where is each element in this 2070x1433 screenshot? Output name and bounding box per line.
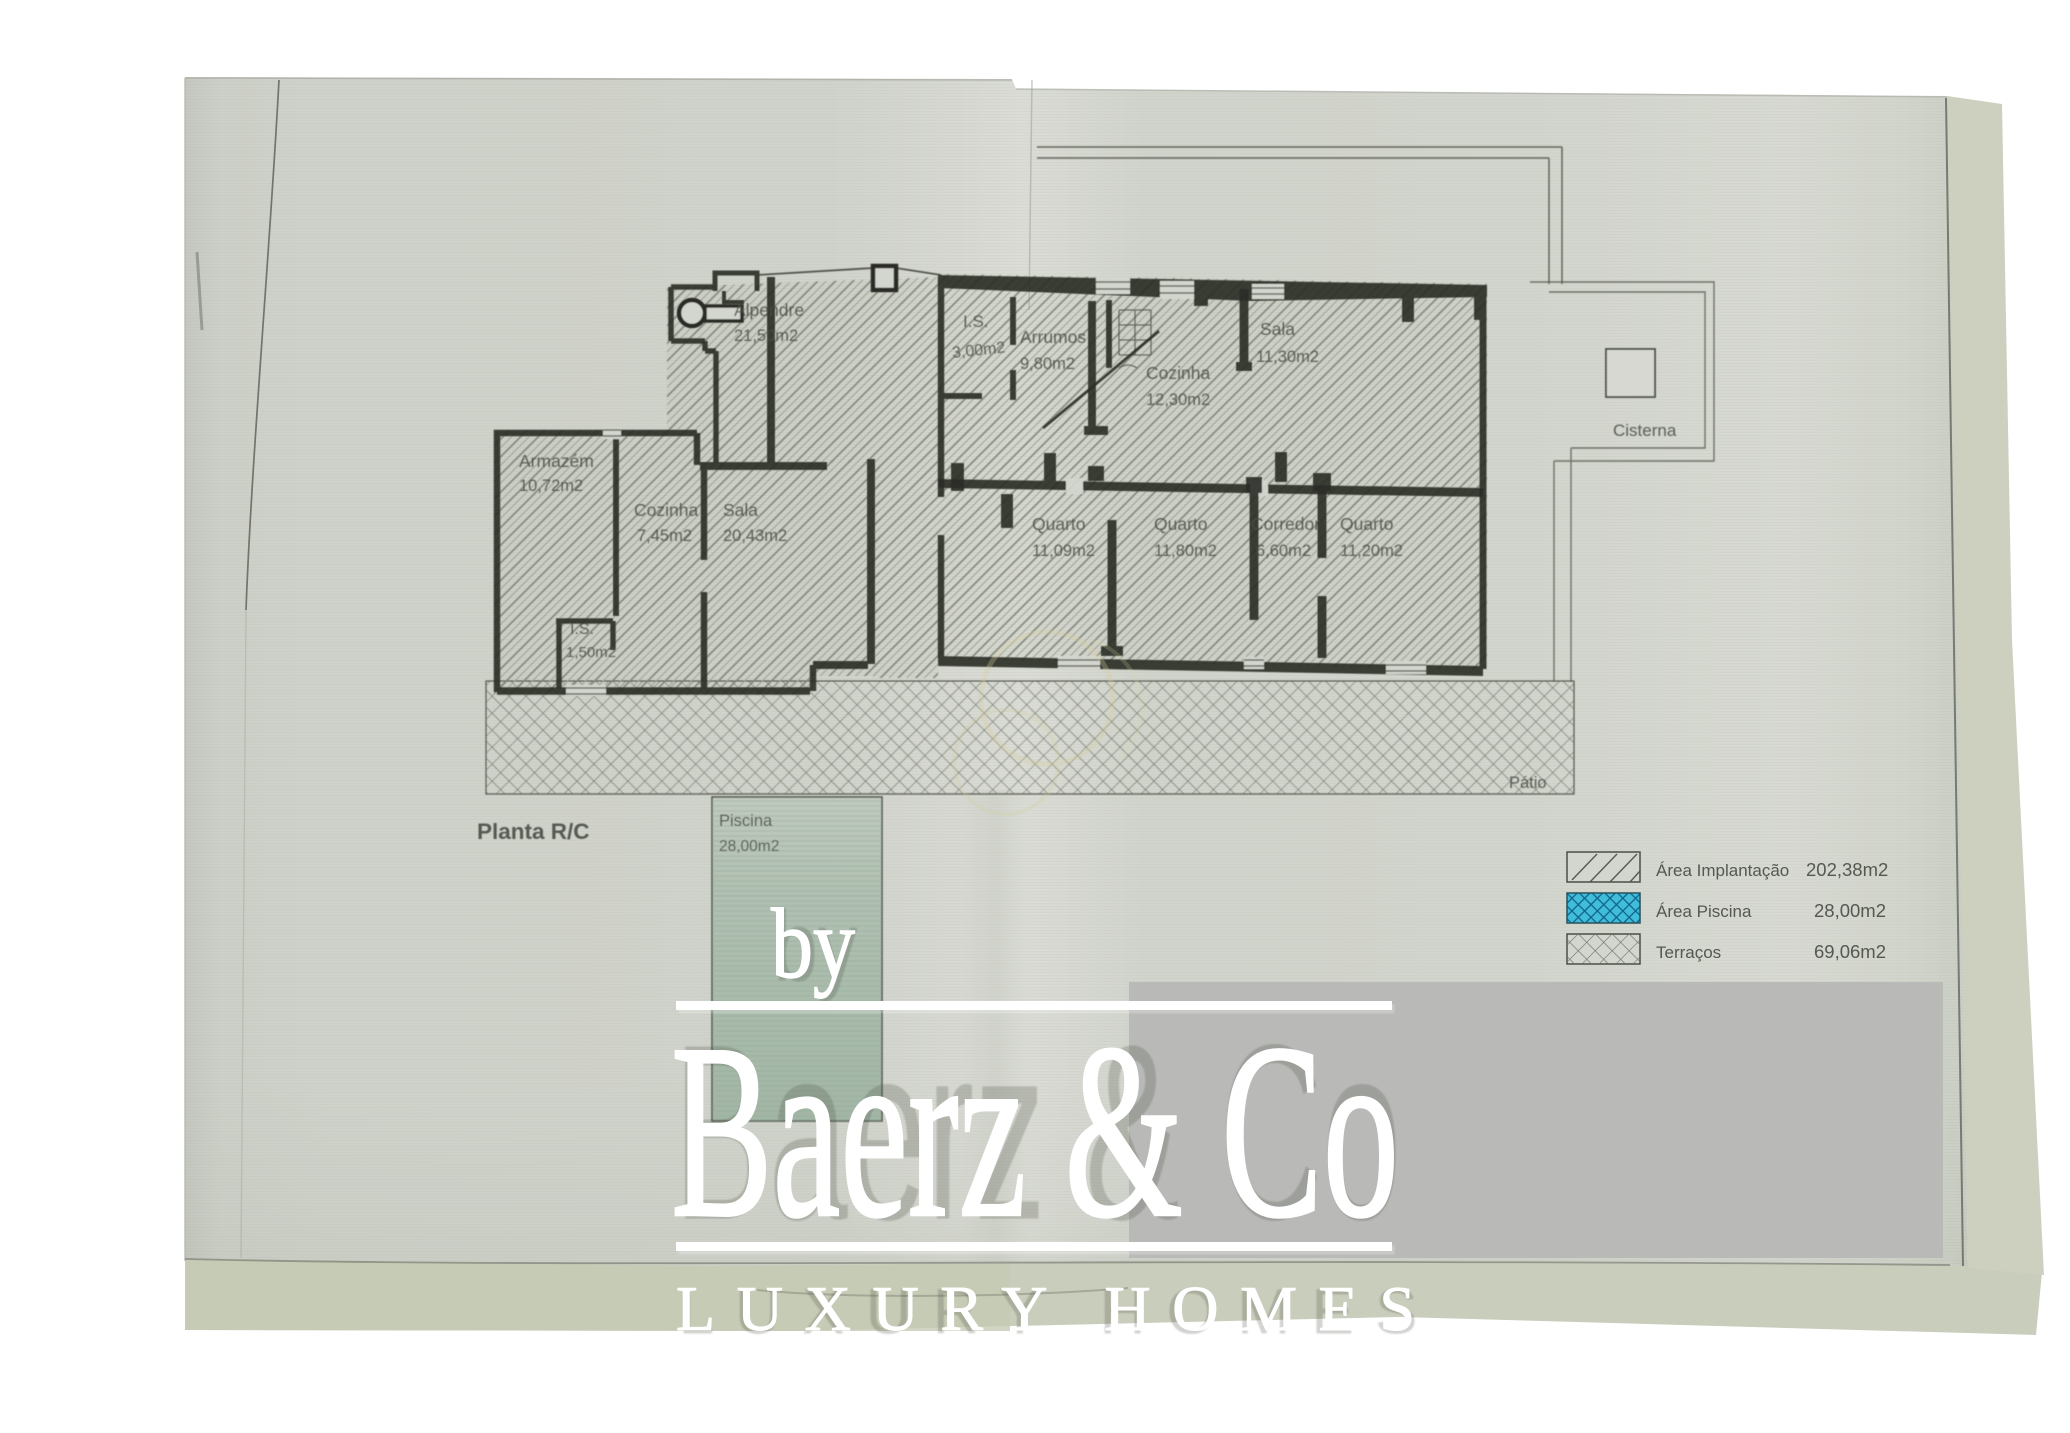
- svg-text:1,50m2: 1,50m2: [566, 644, 616, 661]
- svg-text:Terraços: Terraços: [1656, 943, 1721, 962]
- svg-text:21,50m2: 21,50m2: [734, 327, 798, 345]
- svg-text:Quarto: Quarto: [1154, 514, 1208, 534]
- svg-text:7,45m2: 7,45m2: [637, 527, 692, 545]
- svg-text:Alpendre: Alpendre: [734, 300, 804, 320]
- svg-text:Planta R/C: Planta R/C: [477, 819, 590, 844]
- svg-text:I.S.: I.S.: [570, 621, 594, 638]
- svg-text:Cisterna: Cisterna: [1613, 421, 1677, 440]
- svg-text:Pátio: Pátio: [1509, 774, 1547, 792]
- svg-text:11,09m2: 11,09m2: [1032, 542, 1095, 560]
- svg-text:Corredor: Corredor: [1251, 514, 1320, 534]
- svg-text:28,00m2: 28,00m2: [1814, 900, 1886, 921]
- svg-text:Sala: Sala: [1260, 319, 1295, 339]
- svg-text:28,00m2: 28,00m2: [719, 838, 779, 855]
- svg-text:Cozinha: Cozinha: [634, 500, 698, 520]
- svg-text:Área Piscina: Área Piscina: [1656, 902, 1752, 921]
- svg-text:Sala: Sala: [723, 500, 758, 520]
- svg-text:11,30m2: 11,30m2: [1256, 348, 1319, 366]
- svg-text:11,20m2: 11,20m2: [1340, 542, 1403, 560]
- svg-text:Armazém: Armazém: [519, 451, 594, 471]
- svg-text:Quarto: Quarto: [1032, 514, 1086, 534]
- svg-text:Área Implantação: Área Implantação: [1656, 861, 1789, 880]
- svg-text:Piscina: Piscina: [719, 812, 773, 830]
- svg-text:11,80m2: 11,80m2: [1154, 542, 1217, 560]
- svg-text:Cozinha: Cozinha: [1146, 363, 1210, 383]
- svg-text:69,06m2: 69,06m2: [1814, 941, 1886, 962]
- svg-text:10,72m2: 10,72m2: [519, 477, 583, 495]
- svg-text:I.S.: I.S.: [963, 312, 989, 331]
- svg-text:9,80m2: 9,80m2: [1020, 355, 1075, 373]
- svg-text:Arrumos: Arrumos: [1020, 327, 1086, 347]
- svg-text:20,43m2: 20,43m2: [723, 527, 787, 545]
- svg-text:Quarto: Quarto: [1340, 514, 1394, 534]
- svg-text:by: by: [771, 888, 855, 999]
- svg-text:12,30m2: 12,30m2: [1146, 391, 1210, 409]
- svg-text:6,60m2: 6,60m2: [1256, 542, 1311, 560]
- svg-text:202,38m2: 202,38m2: [1806, 859, 1888, 880]
- svg-text:Baerz & Co: Baerz & Co: [671, 993, 1399, 1270]
